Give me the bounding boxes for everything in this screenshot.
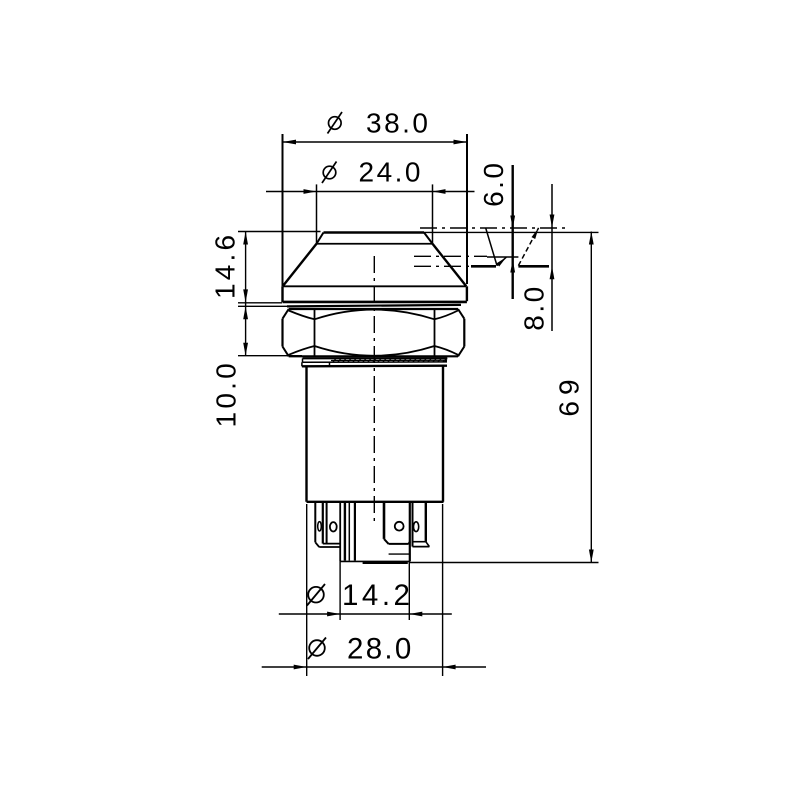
svg-text:24.0: 24.0 [359, 157, 424, 188]
svg-text:6.0: 6.0 [478, 160, 509, 206]
svg-text:69: 69 [553, 373, 584, 416]
svg-text:8.0: 8.0 [519, 284, 550, 330]
svg-text:14.6: 14.6 [210, 232, 241, 299]
svg-text:28.0: 28.0 [347, 633, 414, 666]
svg-text:10.0: 10.0 [211, 360, 242, 427]
svg-text:14.2: 14.2 [342, 579, 413, 612]
svg-text:38.0: 38.0 [366, 108, 431, 139]
